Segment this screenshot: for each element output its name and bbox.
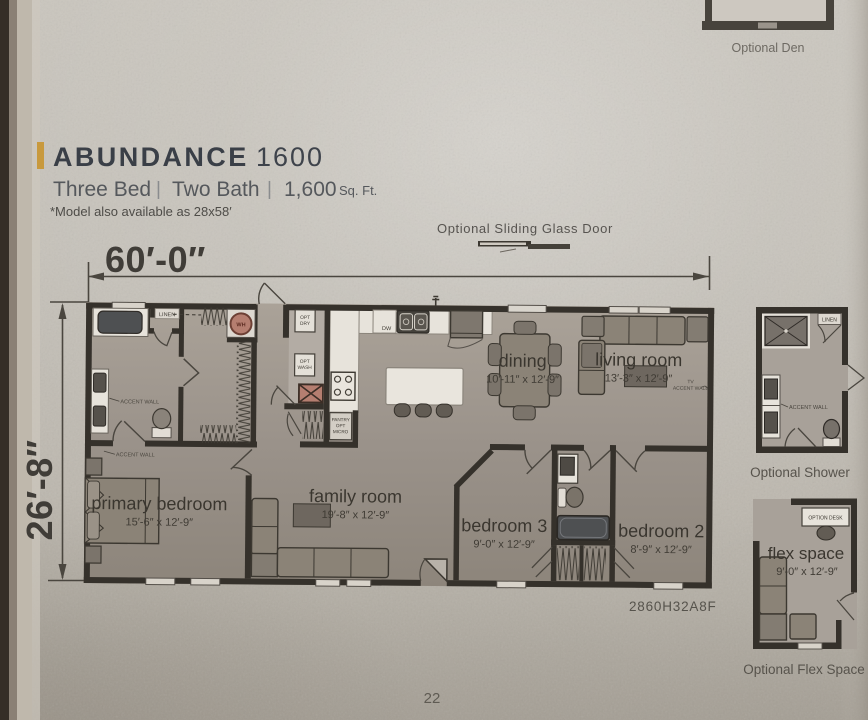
svg-text:living room: living room	[595, 349, 682, 370]
svg-text:WH: WH	[236, 322, 245, 328]
svg-text:2860H32A8F: 2860H32A8F	[629, 599, 717, 614]
svg-text:bedroom 3: bedroom 3	[461, 515, 547, 536]
svg-text:ACCENT WALL: ACCENT WALL	[116, 452, 155, 458]
svg-text:OPT: OPT	[300, 359, 310, 365]
svg-text:10′-11″ x 12′-9″: 10′-11″ x 12′-9″	[486, 373, 559, 386]
svg-text:LINEN: LINEN	[159, 312, 175, 318]
svg-text:DRY: DRY	[300, 321, 311, 327]
svg-text:Optional Flex Space: Optional Flex Space	[743, 662, 865, 677]
svg-text:ACCENT WALL: ACCENT WALL	[789, 405, 828, 411]
svg-text:26′-8″: 26′-8″	[19, 440, 60, 541]
svg-text:LINEN: LINEN	[822, 318, 837, 324]
svg-text:Optional Sliding Glass Door: Optional Sliding Glass Door	[437, 221, 613, 236]
svg-text:PANTRY: PANTRY	[332, 417, 350, 422]
svg-text:9′-0″ x 12′-9″: 9′-0″ x 12′-9″	[473, 538, 535, 551]
svg-text:19′-8″ x 12′-9″: 19′-8″ x 12′-9″	[322, 509, 390, 522]
svg-text:MICRO: MICRO	[333, 429, 349, 434]
svg-text:8′-9″ x 12′-9″: 8′-9″ x 12′-9″	[630, 544, 692, 557]
svg-text:Three Bed: Three Bed	[53, 178, 151, 201]
svg-text:Optional Den: Optional Den	[732, 41, 805, 55]
svg-text:Sq. Ft.: Sq. Ft.	[339, 183, 377, 198]
svg-text:dining: dining	[499, 351, 547, 371]
svg-text:primary bedroom: primary bedroom	[91, 493, 227, 514]
svg-text:ABUNDANCE: ABUNDANCE	[53, 142, 249, 172]
svg-text:9′-0″ x 12′-9″: 9′-0″ x 12′-9″	[776, 566, 838, 578]
svg-text:OPT: OPT	[336, 423, 346, 428]
svg-text:1,600: 1,600	[284, 178, 337, 201]
svg-text:|: |	[156, 179, 161, 200]
svg-text:22: 22	[424, 690, 441, 707]
svg-text:60′-0″: 60′-0″	[105, 239, 206, 280]
svg-text:1600: 1600	[256, 142, 324, 172]
svg-text:flex space: flex space	[768, 544, 845, 563]
svg-text:OPT: OPT	[300, 315, 310, 321]
svg-text:*Model also available as 28x58: *Model also available as 28x58′	[50, 204, 232, 219]
svg-text:DW: DW	[382, 326, 392, 332]
svg-text:OPTION DESK: OPTION DESK	[808, 516, 843, 522]
svg-text:15′-6″ x 12′-9″: 15′-6″ x 12′-9″	[125, 516, 193, 529]
svg-text:Two Bath: Two Bath	[172, 178, 260, 201]
svg-text:bedroom 2: bedroom 2	[618, 521, 704, 542]
svg-text:Optional Shower: Optional Shower	[750, 465, 850, 480]
svg-text:TV: TV	[687, 379, 694, 385]
svg-text:ACCENT WALL: ACCENT WALL	[120, 399, 159, 405]
svg-text:WASH: WASH	[298, 365, 313, 371]
svg-text:family room: family room	[309, 486, 402, 507]
svg-text:|: |	[267, 179, 272, 200]
svg-text:13′-3″ x 12′-9″: 13′-3″ x 12′-9″	[605, 373, 673, 386]
